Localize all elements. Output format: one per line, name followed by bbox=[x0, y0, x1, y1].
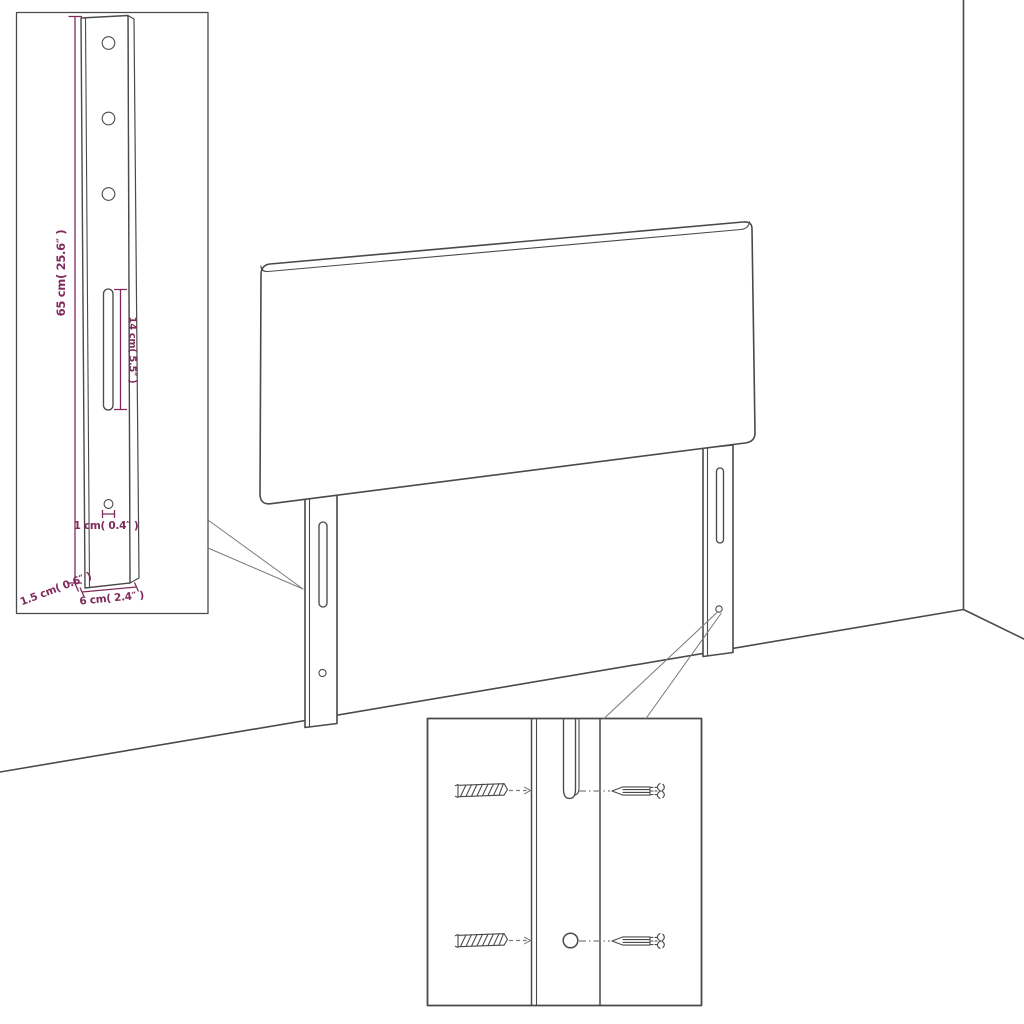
mounting-inset-frame bbox=[428, 719, 702, 1006]
headboard-dimension-diagram: 65 cm( 25.6″ ) 14 cm( 5.5″ ) 1 cm( 0.4″ … bbox=[0, 0, 1024, 1024]
left-leg bbox=[305, 487, 337, 728]
inset-leg-hole-3 bbox=[102, 188, 115, 201]
dimension-hole-diameter-label: 1 cm( 0.4″ ) bbox=[74, 520, 139, 532]
headboard-panel bbox=[260, 222, 755, 504]
right-leg-slot bbox=[717, 468, 724, 543]
dimension-leg-height-label: 65 cm( 25.6″ ) bbox=[54, 230, 68, 317]
inset-leg-small-hole bbox=[104, 500, 113, 509]
inset-leg-hole-2 bbox=[102, 112, 115, 125]
inset-leg-slot bbox=[104, 289, 114, 410]
leader-lines-leg-detail bbox=[208, 520, 303, 589]
right-leg-hole bbox=[716, 606, 722, 612]
left-leg-hole bbox=[319, 669, 326, 676]
diagram-svg: 65 cm( 25.6″ ) 14 cm( 5.5″ ) 1 cm( 0.4″ … bbox=[0, 0, 1024, 1024]
dimension-slot-length-label: 14 cm( 5.5″ ) bbox=[127, 317, 138, 384]
right-leg bbox=[703, 445, 733, 657]
inset-leg-hole-1 bbox=[102, 37, 115, 50]
floor-line-right bbox=[964, 610, 1024, 640]
mounting-detail-inset bbox=[428, 719, 702, 1006]
headboard-outline bbox=[260, 222, 755, 504]
inset-round-hole bbox=[563, 933, 578, 948]
leg-detail-inset: 65 cm( 25.6″ ) 14 cm( 5.5″ ) 1 cm( 0.4″ … bbox=[17, 13, 209, 614]
left-leg-slot bbox=[319, 522, 327, 607]
